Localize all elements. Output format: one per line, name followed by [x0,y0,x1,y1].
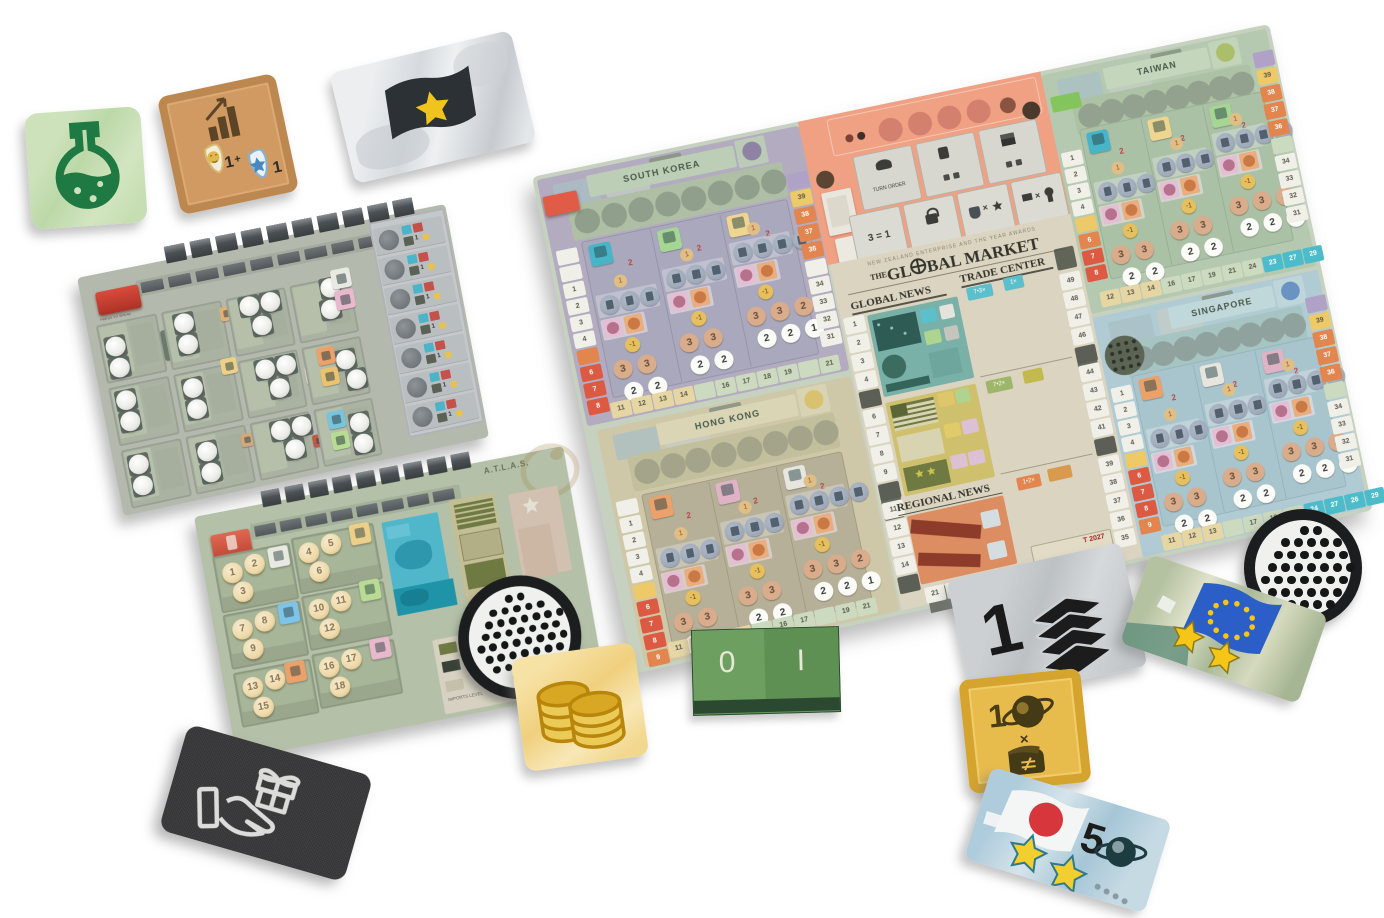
svg-text:1: 1 [271,158,283,176]
svg-text:+: + [233,153,242,166]
